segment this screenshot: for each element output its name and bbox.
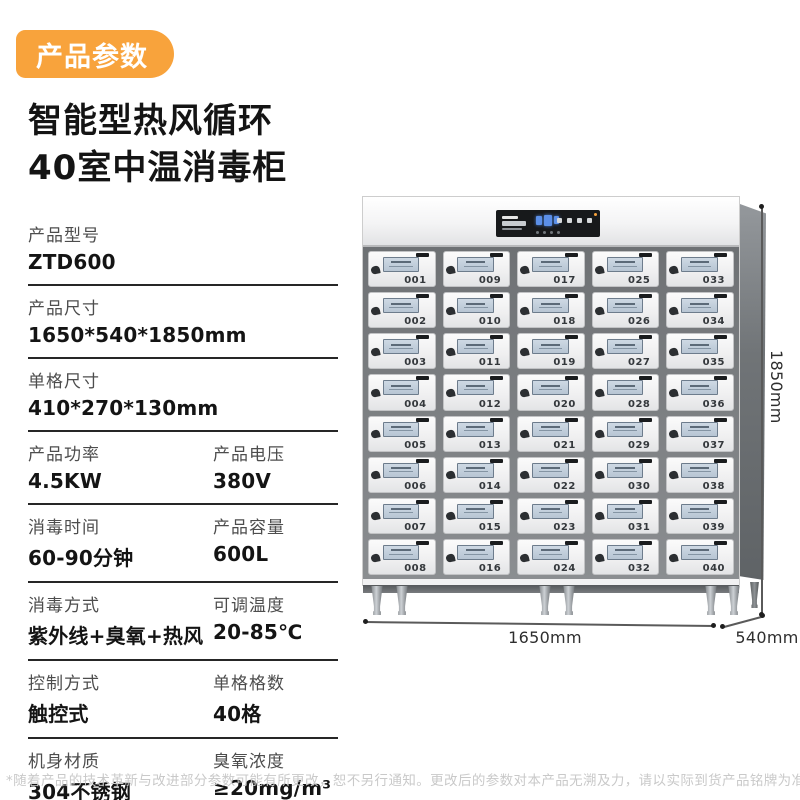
door-label-window — [681, 298, 718, 313]
cabinet-door: 034 — [666, 292, 734, 328]
cabinet-door: 014 — [443, 457, 511, 493]
door-label-window — [681, 463, 718, 478]
door-number: 012 — [479, 399, 501, 410]
spec-label: 单格尺寸 — [28, 367, 338, 392]
door-number: 019 — [553, 357, 575, 368]
cabinet-door: 015 — [443, 498, 511, 534]
door-number: 035 — [703, 357, 725, 368]
door-handle-icon — [370, 306, 380, 316]
spec-value: 触控式 — [28, 698, 213, 727]
cabinet-door: 024 — [517, 539, 585, 575]
dim-dot — [759, 204, 764, 209]
door-number: 006 — [404, 481, 426, 492]
door-number: 011 — [479, 357, 501, 368]
spec-cell: 产品电压380V — [213, 440, 338, 493]
spec-row: 消毒方式紫外线+臭氧+热风可调温度20-85℃ — [28, 583, 338, 661]
door-label-window — [532, 504, 569, 519]
cabinet-door: 012 — [443, 374, 511, 410]
door-handle-icon — [445, 265, 455, 275]
door-label-window — [607, 545, 644, 560]
spec-label: 产品型号 — [28, 221, 338, 246]
door-number: 009 — [479, 275, 501, 286]
door-handle-icon — [669, 265, 679, 275]
product-parameters-page: 产品参数 智能型热风循环 40室中温消毒柜 产品型号ZTD600产品尺寸1650… — [0, 0, 800, 800]
door-number: 027 — [628, 357, 650, 368]
door-label-window — [383, 545, 420, 560]
spec-label: 消毒时间 — [28, 513, 213, 538]
door-number: 003 — [404, 357, 426, 368]
door-handle-icon — [519, 470, 529, 480]
spec-label: 可调温度 — [213, 591, 338, 616]
spec-cell: 产品型号ZTD600 — [28, 221, 338, 274]
cabinet-door: 026 — [592, 292, 660, 328]
door-number: 024 — [553, 563, 575, 574]
cabinet-door: 021 — [517, 416, 585, 452]
spec-row: 产品功率4.5KW产品电压380V — [28, 432, 338, 505]
door-number: 008 — [404, 563, 426, 574]
door-handle-icon — [519, 347, 529, 357]
cabinet-door: 025 — [592, 251, 660, 287]
door-handle-icon — [669, 388, 679, 398]
door-handle-icon — [370, 512, 380, 522]
door-number: 016 — [479, 563, 501, 574]
door-handle-icon — [519, 306, 529, 316]
door-handle-icon — [519, 553, 529, 563]
spec-label: 消毒方式 — [28, 591, 213, 616]
cabinet-door: 037 — [666, 416, 734, 452]
door-handle-icon — [669, 470, 679, 480]
door-handle-icon — [519, 512, 529, 522]
door-handle-icon — [370, 470, 380, 480]
door-label-window — [681, 339, 718, 354]
door-label-window — [457, 545, 494, 560]
door-handle-icon — [594, 429, 604, 439]
panel-logo — [502, 216, 528, 231]
door-label-window — [532, 422, 569, 437]
spec-cell: 单格格数40格 — [213, 669, 338, 727]
cabinet-door: 030 — [592, 457, 660, 493]
cabinet-door: 027 — [592, 333, 660, 369]
cabinet-door: 010 — [443, 292, 511, 328]
cabinet-door: 031 — [592, 498, 660, 534]
door-handle-icon — [594, 388, 604, 398]
door-handle-icon — [370, 553, 380, 563]
door-handle-icon — [594, 553, 604, 563]
door-label-window — [383, 504, 420, 519]
door-label-window — [532, 463, 569, 478]
door-label-window — [383, 298, 420, 313]
spec-value: 40格 — [213, 698, 338, 727]
cabinet-door: 016 — [443, 539, 511, 575]
door-handle-icon — [445, 512, 455, 522]
door-number: 010 — [479, 316, 501, 327]
door-number: 031 — [628, 522, 650, 533]
cabinet-leg — [395, 586, 409, 615]
door-handle-icon — [669, 512, 679, 522]
spec-label: 产品容量 — [213, 513, 338, 538]
door-label-window — [457, 463, 494, 478]
spec-cell: 产品功率4.5KW — [28, 440, 213, 493]
spec-cell: 消毒方式紫外线+臭氧+热风 — [28, 591, 213, 649]
door-number: 001 — [404, 275, 426, 286]
spec-row: 消毒时间60-90分钟产品容量600L — [28, 505, 338, 583]
cabinet-door: 039 — [666, 498, 734, 534]
door-label-window — [607, 463, 644, 478]
door-label-window — [607, 257, 644, 272]
door-handle-icon — [594, 347, 604, 357]
cabinet-leg — [727, 586, 741, 615]
cabinet-door: 038 — [666, 457, 734, 493]
title-line-2: 40室中温消毒柜 — [28, 145, 287, 192]
door-label-window — [681, 504, 718, 519]
door-number: 034 — [703, 316, 725, 327]
disclaimer-text: *随着产品的技术革新与改进部分参数可能有所更改，恕不另行通知。更改后的参数对本产… — [6, 769, 798, 789]
cabinet-door: 020 — [517, 374, 585, 410]
cabinet-door: 008 — [368, 539, 436, 575]
door-number: 036 — [703, 399, 725, 410]
cabinet-door: 007 — [368, 498, 436, 534]
door-handle-icon — [519, 265, 529, 275]
cabinet-door: 033 — [666, 251, 734, 287]
cabinet-door: 023 — [517, 498, 585, 534]
cabinet-leg — [749, 582, 760, 608]
door-label-window — [457, 504, 494, 519]
depth-dimension-line — [724, 616, 763, 628]
door-number: 023 — [553, 522, 575, 533]
spec-label: 控制方式 — [28, 669, 213, 694]
door-number: 005 — [404, 440, 426, 451]
panel-indicator-led-icon — [594, 213, 597, 216]
door-latch-icon — [714, 418, 727, 422]
panel-function-icons — [557, 218, 592, 223]
spec-value: ZTD600 — [28, 250, 338, 274]
width-dimension-label: 1650mm — [445, 628, 645, 647]
door-label-window — [457, 380, 494, 395]
door-handle-icon — [370, 265, 380, 275]
spec-value: 1650*540*1850mm — [28, 323, 338, 347]
product-params-badge: 产品参数 — [16, 30, 174, 78]
door-label-window — [383, 463, 420, 478]
door-label-window — [681, 380, 718, 395]
cabinet-plinth — [363, 585, 739, 593]
cabinet-door: 001 — [368, 251, 436, 287]
dim-dot — [759, 612, 764, 617]
door-handle-icon — [370, 388, 380, 398]
spec-row: 产品型号ZTD600 — [28, 213, 338, 286]
door-number: 004 — [404, 399, 426, 410]
cabinet-door: 017 — [517, 251, 585, 287]
door-number: 028 — [628, 399, 650, 410]
spec-value: 600L — [213, 542, 338, 566]
door-handle-icon — [445, 388, 455, 398]
door-label-window — [532, 380, 569, 395]
door-handle-icon — [669, 306, 679, 316]
cabinet-door: 011 — [443, 333, 511, 369]
door-latch-icon — [565, 418, 578, 422]
door-label-window — [457, 257, 494, 272]
door-number: 040 — [703, 563, 725, 574]
cabinet-front: 0010020030040050060070080090100110120130… — [362, 196, 740, 586]
door-label-window — [383, 422, 420, 437]
door-handle-icon — [594, 470, 604, 480]
spec-label: 产品尺寸 — [28, 294, 338, 319]
door-number: 039 — [703, 522, 725, 533]
door-label-window — [607, 380, 644, 395]
door-number: 021 — [553, 440, 575, 451]
door-handle-icon — [669, 347, 679, 357]
door-label-window — [383, 339, 420, 354]
title-line-1: 智能型热风循环 — [28, 98, 287, 145]
door-label-window — [681, 422, 718, 437]
spec-value: 4.5KW — [28, 469, 213, 493]
cabinet-leg — [538, 586, 552, 615]
spec-label: 产品功率 — [28, 440, 213, 465]
door-handle-icon — [445, 429, 455, 439]
door-number: 032 — [628, 563, 650, 574]
door-handle-icon — [370, 429, 380, 439]
door-label-window — [681, 545, 718, 560]
door-handle-icon — [445, 470, 455, 480]
spec-value: 410*270*130mm — [28, 396, 338, 420]
door-label-window — [532, 257, 569, 272]
door-label-window — [457, 339, 494, 354]
door-handle-icon — [594, 306, 604, 316]
cabinet-door: 019 — [517, 333, 585, 369]
door-number: 033 — [703, 275, 725, 286]
spec-value: 紫外线+臭氧+热风 — [28, 620, 213, 649]
door-handle-icon — [669, 553, 679, 563]
cabinet-door: 009 — [443, 251, 511, 287]
cabinet-door: 040 — [666, 539, 734, 575]
door-handle-icon — [594, 265, 604, 275]
depth-dimension-label: 540mm — [727, 628, 800, 647]
door-number: 026 — [628, 316, 650, 327]
door-handle-icon — [519, 429, 529, 439]
cabinet-leg — [704, 586, 718, 615]
cabinet-door: 004 — [368, 374, 436, 410]
door-label-window — [681, 257, 718, 272]
door-label-window — [457, 298, 494, 313]
door-handle-icon — [445, 347, 455, 357]
door-handle-icon — [445, 553, 455, 563]
door-label-window — [607, 298, 644, 313]
spec-value: 60-90分钟 — [28, 542, 213, 571]
door-number: 037 — [703, 440, 725, 451]
door-number: 020 — [553, 399, 575, 410]
product-image: 0010020030040050060070080090100110120130… — [350, 188, 800, 678]
door-number: 029 — [628, 440, 650, 451]
cabinet-top-band — [363, 197, 739, 247]
door-number: 002 — [404, 316, 426, 327]
door-handle-icon — [669, 429, 679, 439]
door-latch-icon — [416, 418, 429, 422]
door-label-window — [532, 545, 569, 560]
door-handle-icon — [370, 347, 380, 357]
cabinet-leg — [370, 586, 384, 615]
spec-table: 产品型号ZTD600产品尺寸1650*540*1850mm单格尺寸410*270… — [28, 213, 338, 800]
cabinet-door: 036 — [666, 374, 734, 410]
door-number: 030 — [628, 481, 650, 492]
door-handle-icon — [445, 306, 455, 316]
door-latch-icon — [639, 418, 652, 422]
spec-cell: 消毒时间60-90分钟 — [28, 513, 213, 571]
cabinet-door: 035 — [666, 333, 734, 369]
spec-row: 单格尺寸410*270*130mm — [28, 359, 338, 432]
spec-row: 产品尺寸1650*540*1850mm — [28, 286, 338, 359]
door-handle-icon — [519, 388, 529, 398]
door-number: 007 — [404, 522, 426, 533]
width-dimension-line — [366, 621, 715, 626]
cabinet-door: 032 — [592, 539, 660, 575]
door-label-window — [607, 504, 644, 519]
spec-cell: 单格尺寸410*270*130mm — [28, 367, 338, 420]
door-label-window — [532, 339, 569, 354]
door-handle-icon — [594, 512, 604, 522]
dim-dot — [363, 619, 368, 624]
spec-value: 380V — [213, 469, 338, 493]
door-latch-icon — [490, 418, 503, 422]
doors-grid: 0010020030040050060070080090100110120130… — [363, 247, 739, 579]
cabinet-door: 002 — [368, 292, 436, 328]
door-number: 013 — [479, 440, 501, 451]
height-dimension-line — [761, 207, 763, 615]
page-title: 智能型热风循环 40室中温消毒柜 — [28, 98, 287, 192]
cabinet-door: 018 — [517, 292, 585, 328]
door-number: 018 — [553, 316, 575, 327]
door-label-window — [383, 257, 420, 272]
door-label-window — [383, 380, 420, 395]
door-label-window — [532, 298, 569, 313]
door-label-window — [457, 422, 494, 437]
control-panel — [496, 210, 600, 237]
door-number: 017 — [553, 275, 575, 286]
cabinet-door: 005 — [368, 416, 436, 452]
spec-cell: 产品尺寸1650*540*1850mm — [28, 294, 338, 347]
door-number: 038 — [703, 481, 725, 492]
cabinet-door: 029 — [592, 416, 660, 452]
cabinet-door: 013 — [443, 416, 511, 452]
spec-label: 产品电压 — [213, 440, 338, 465]
cabinet-door: 022 — [517, 457, 585, 493]
spec-cell: 产品容量600L — [213, 513, 338, 571]
cabinet-leg — [562, 586, 576, 615]
dim-dot — [720, 624, 725, 629]
spec-row: 控制方式触控式单格格数40格 — [28, 661, 338, 739]
dim-dot — [711, 623, 716, 628]
door-number: 022 — [553, 481, 575, 492]
spec-cell: 控制方式触控式 — [28, 669, 213, 727]
door-number: 015 — [479, 522, 501, 533]
door-label-window — [607, 339, 644, 354]
cabinet-door: 006 — [368, 457, 436, 493]
spec-cell: 可调温度20-85℃ — [213, 591, 338, 649]
door-number: 014 — [479, 481, 501, 492]
height-dimension-label: 1850mm — [767, 350, 786, 424]
cabinet-door: 028 — [592, 374, 660, 410]
panel-buttons-icon — [536, 231, 560, 234]
spec-label: 单格格数 — [213, 669, 338, 694]
spec-value: 20-85℃ — [213, 620, 338, 644]
cabinet-door: 003 — [368, 333, 436, 369]
door-label-window — [607, 422, 644, 437]
door-number: 025 — [628, 275, 650, 286]
